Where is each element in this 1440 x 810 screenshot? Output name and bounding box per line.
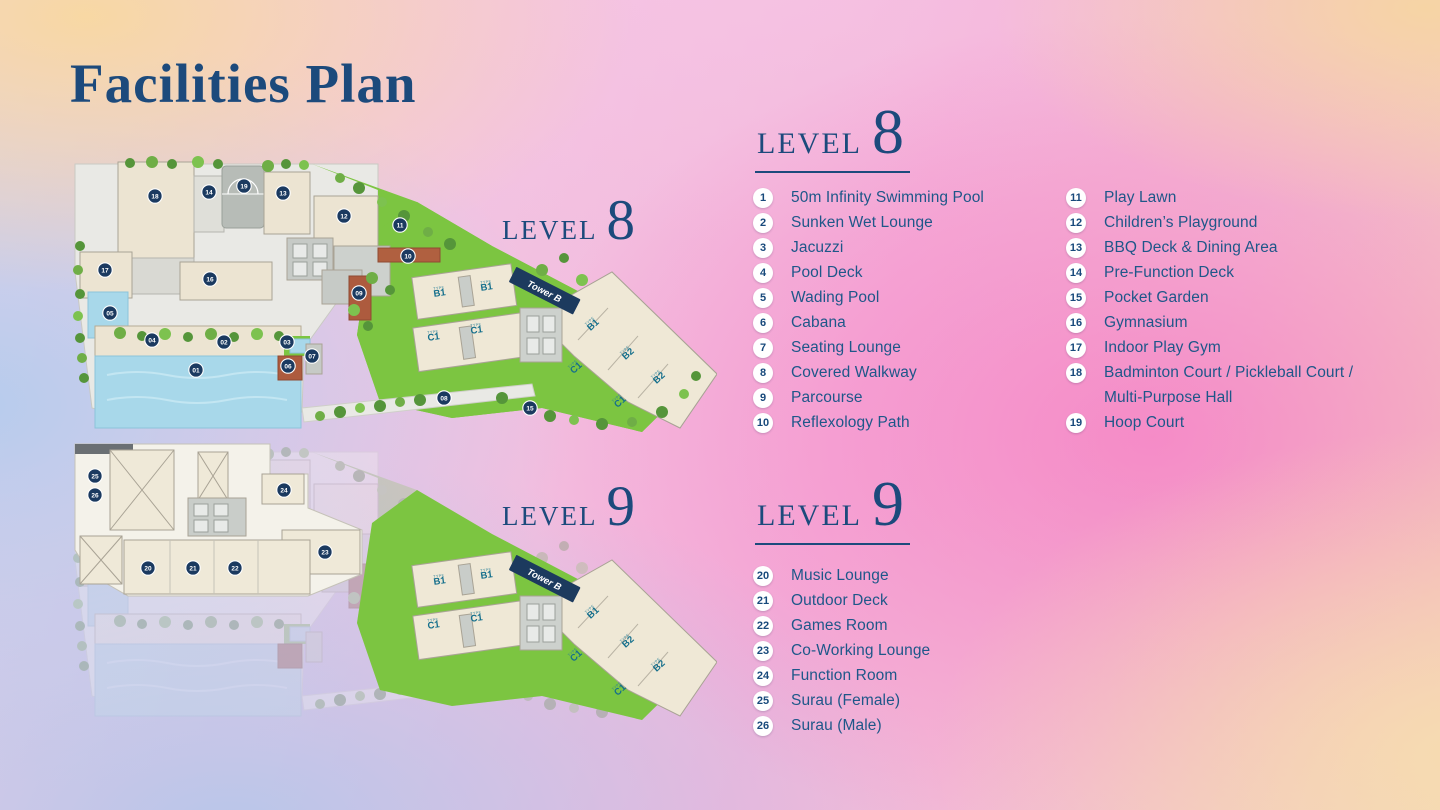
plan-marker-19: 19 [237,179,251,193]
legend-item-number: 7 [753,338,773,358]
legend-item-label: Sunken Wet Lounge [791,214,933,232]
level-9-heading: LEVEL 9 [755,478,910,545]
legend-item-label: Co-Working Lounge [791,642,930,660]
legend-item-number: 22 [753,616,773,636]
svg-text:C1: C1 [427,619,441,632]
legend-item-label: Function Room [791,667,897,685]
svg-text:23: 23 [321,549,329,556]
legend-item: 8Covered Walkway [753,360,984,385]
legend-item-number: 3 [753,238,773,258]
svg-text:05: 05 [106,310,114,317]
legend-item-number: 21 [753,591,773,611]
legend-item-label: Badminton Court / Pickleball Court / [1104,364,1353,382]
svg-text:B1: B1 [433,287,447,300]
plan-marker-02: 02 [217,335,231,349]
svg-text:06: 06 [284,363,292,370]
legend-item-label: Indoor Play Gym [1104,339,1221,357]
svg-text:21: 21 [189,565,197,572]
svg-text:09: 09 [355,290,363,297]
legend-item-label: Hoop Court [1104,414,1184,432]
svg-text:20: 20 [144,565,152,572]
legend-item-label: Play Lawn [1104,189,1176,207]
legend-item: 18Badminton Court / Pickleball Court / [1066,360,1353,385]
legend-item-number: 14 [1066,263,1086,283]
plan-caption-level-word: LEVEL [502,215,597,246]
legend-item: 13BBQ Deck & Dining Area [1066,235,1353,260]
plan-marker-24: 24 [277,483,291,497]
svg-text:11: 11 [397,222,404,229]
legend-item-label: Gymnasium [1104,314,1188,332]
legend-item: 9Parcourse [753,385,984,410]
legend-item-label: Parcourse [791,389,863,407]
plan-marker-06: 06 [281,359,295,373]
legend-item-label: Cabana [791,314,846,332]
legend-item-number: 18 [1066,363,1086,383]
svg-text:B1: B1 [480,569,494,582]
legend-item: 14Pre-Function Deck [1066,260,1353,285]
plan-marker-13: 13 [276,186,290,200]
legend-item-number: 24 [753,666,773,686]
svg-text:16: 16 [206,276,214,283]
level-9-legend-column-1: 20Music Lounge21Outdoor Deck22Games Room… [753,563,930,738]
legend-item: 6Cabana [753,310,984,335]
svg-text:19: 19 [240,183,248,190]
legend-item-label: 50m Infinity Swimming Pool [791,189,984,207]
legend-item-number: 26 [753,716,773,736]
legend-item: 24Function Room [753,663,930,688]
legend-item-label: Pre-Function Deck [1104,264,1234,282]
plan-marker-25: 25 [88,469,102,483]
svg-text:B1: B1 [480,281,494,294]
plan-marker-14: 14 [202,185,216,199]
legend-item-number: 16 [1066,313,1086,333]
svg-text:22: 22 [231,565,239,572]
svg-text:03: 03 [283,339,291,346]
legend-item-label: Pool Deck [791,264,863,282]
svg-text:15: 15 [526,405,534,412]
svg-text:02: 02 [220,339,228,346]
legend-item: 19Hoop Court [1066,410,1353,435]
svg-text:04: 04 [148,337,156,344]
plan-marker-21: 21 [186,561,200,575]
plan-marker-18: 18 [148,189,162,203]
legend-item: 3Jacuzzi [753,235,984,260]
svg-text:12: 12 [340,213,348,220]
legend-item-number: 11 [1066,188,1086,208]
legend-item-number: 1 [753,188,773,208]
svg-text:01: 01 [192,367,200,374]
plan-marker-22: 22 [228,561,242,575]
plan-marker-05: 05 [103,306,117,320]
legend-item-number: 9 [753,388,773,408]
heading-level-word: LEVEL [757,499,862,533]
legend-item: 150m Infinity Swimming Pool [753,185,984,210]
legend-item: 7Seating Lounge [753,335,984,360]
legend-item-label: Surau (Male) [791,717,882,735]
heading-level-number: 8 [872,106,904,157]
svg-text:C1: C1 [470,324,484,337]
legend-item-label: Reflexology Path [791,414,910,432]
legend-item: 20Music Lounge [753,563,930,588]
legend-item-number: 17 [1066,338,1086,358]
svg-text:17: 17 [101,267,109,274]
svg-text:13: 13 [279,190,287,197]
legend-item-number: 23 [753,641,773,661]
legend-item: 22Games Room [753,613,930,638]
facilities-plan-page: Facilities Plan Tower B [0,0,1440,810]
legend-item-line2: Multi-Purpose Hall [1066,385,1353,410]
plan-marker-11: 11 [393,218,407,232]
svg-text:07: 07 [308,353,316,360]
legend-item-label: Music Lounge [791,567,889,585]
plan-marker-26: 26 [88,488,102,502]
legend-item: 17Indoor Play Gym [1066,335,1353,360]
svg-text:C1: C1 [470,612,484,625]
legend-item-label: Pocket Garden [1104,289,1209,307]
legend-item-number: 6 [753,313,773,333]
legend-item-label: BBQ Deck & Dining Area [1104,239,1278,257]
legend-item: 2Sunken Wet Lounge [753,210,984,235]
plan-marker-10: 10 [401,249,415,263]
page-title: Facilities Plan [70,52,416,115]
legend-item-number: 20 [753,566,773,586]
legend-item-label: Children’s Playground [1104,214,1257,232]
plan-marker-15: 15 [523,401,537,415]
plan-marker-16: 16 [203,272,217,286]
svg-text:B1: B1 [433,575,447,588]
legend-item: 25Surau (Female) [753,688,930,713]
plan-caption-level-word: LEVEL [502,501,597,532]
heading-level-number: 9 [872,478,904,529]
legend-item: 21Outdoor Deck [753,588,930,613]
legend-item-label: Outdoor Deck [791,592,888,610]
plan-marker-04: 04 [145,333,159,347]
legend-item: 23Co-Working Lounge [753,638,930,663]
legend-item-number: 4 [753,263,773,283]
level-8-heading: LEVEL 8 [755,106,910,173]
svg-text:C1: C1 [427,331,441,344]
level-8-legend-column-2: 11Play Lawn12Children’s Playground13BBQ … [1066,185,1353,435]
heading-level-word: LEVEL [757,127,862,161]
legend-item-label: Wading Pool [791,289,879,307]
svg-text:18: 18 [151,193,159,200]
legend-item: 4Pool Deck [753,260,984,285]
legend-item: 10Reflexology Path [753,410,984,435]
legend-item-label: Seating Lounge [791,339,901,357]
legend-item: 11Play Lawn [1066,185,1353,210]
legend-item-number: 12 [1066,213,1086,233]
svg-text:24: 24 [280,487,288,494]
legend-item-number: 25 [753,691,773,711]
plan-marker-08: 08 [437,391,451,405]
legend-item-label: Surau (Female) [791,692,900,710]
plan-marker-17: 17 [98,263,112,277]
legend-item-number: 2 [753,213,773,233]
legend-item-number: 5 [753,288,773,308]
legend-item: 15Pocket Garden [1066,285,1353,310]
plan-marker-09: 09 [352,286,366,300]
level-8-plan-caption: LEVEL 8 [502,198,635,246]
plan-marker-07: 07 [305,349,319,363]
level-9-plan-caption: LEVEL 9 [502,484,635,532]
legend-item-label: Multi-Purpose Hall [1104,389,1232,407]
plan-marker-01: 01 [189,363,203,377]
plan-marker-12: 12 [337,209,351,223]
plan-marker-03: 03 [280,335,294,349]
plan-caption-level-number: 9 [606,484,635,530]
svg-text:08: 08 [440,395,448,402]
legend-item-number: 15 [1066,288,1086,308]
legend-item: 16Gymnasium [1066,310,1353,335]
svg-text:10: 10 [404,253,412,260]
legend-item-number: 8 [753,363,773,383]
legend-item-number: 19 [1066,413,1086,433]
svg-text:25: 25 [91,473,99,480]
plan-caption-level-number: 8 [606,198,635,244]
legend-item-number: 10 [753,413,773,433]
svg-text:26: 26 [91,492,99,499]
svg-text:14: 14 [205,189,213,196]
legend-item: 26Surau (Male) [753,713,930,738]
legend-item: 5Wading Pool [753,285,984,310]
level-8-legend-column-1: 150m Infinity Swimming Pool2Sunken Wet L… [753,185,984,435]
plan-marker-20: 20 [141,561,155,575]
legend-item-label: Games Room [791,617,888,635]
legend-item-label: Covered Walkway [791,364,917,382]
legend-item: 12Children’s Playground [1066,210,1353,235]
legend-item-label: Jacuzzi [791,239,843,257]
plan-marker-23: 23 [318,545,332,559]
legend-item-number: 13 [1066,238,1086,258]
